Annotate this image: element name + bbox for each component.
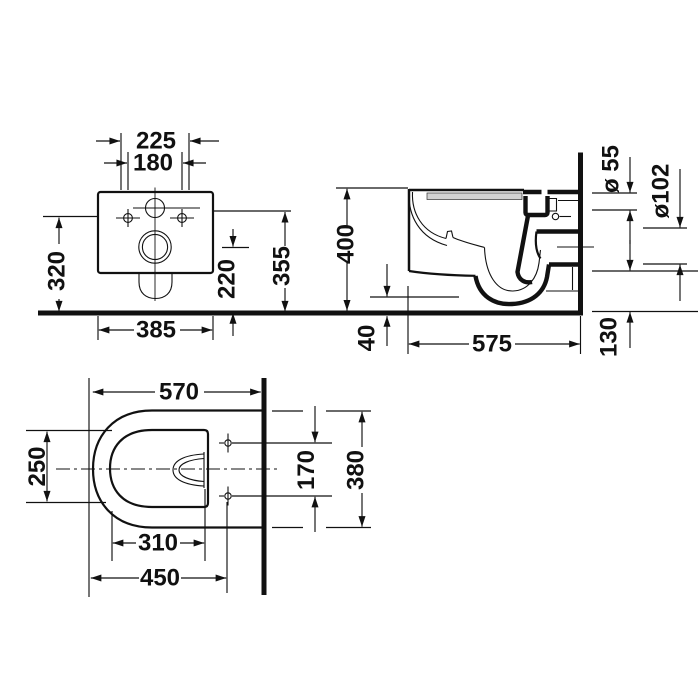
flush-rim-lip [446,231,453,239]
rear-body-outline [98,192,213,273]
dim-side-height: 400 [333,224,360,264]
dim-side-floor-gap: 40 [354,325,381,352]
dim-rear-width: 385 [136,317,176,344]
dim-side-depth: 575 [472,331,512,358]
top-mounting-hole-upper [219,434,231,453]
side-view-dimensions: 400 40 575 ø 55 ø102 130 [333,145,699,358]
dim-top-bowl-width: 250 [24,446,51,486]
side-bottom-edge [409,271,476,276]
dim-side-inlet-diameter: ø 55 [598,145,625,193]
dim-top-hole-spread: 170 [293,450,320,490]
rear-bowl-bottom-outline [139,273,172,299]
mounting-hole-right [170,209,194,227]
water-line [453,238,485,248]
mounting-hole-left [116,209,140,227]
toilet-spec-drawing: 225 180 320 355 220 385 400 40 [0,0,700,700]
dim-rear-hole-span: 180 [133,150,173,177]
dim-rear-height-right: 355 [269,246,296,286]
dim-side-outlet-diameter: ø102 [648,164,675,219]
dim-rear-height-left: 320 [44,251,71,291]
trap-inner-channel [485,248,541,292]
floor-and-wall-lines [38,153,583,596]
sump-inner-arc [179,459,204,482]
flush-valve-box [526,196,548,215]
dim-top-depth: 570 [159,379,199,406]
side-section-view [409,189,594,304]
rear-view [98,188,213,302]
trap-outer-wall [476,265,550,305]
dim-top-width: 380 [343,450,370,490]
dim-top-hole-depth: 450 [140,565,180,592]
seat-band [427,193,522,200]
technical-drawing-sheet: 225 180 320 355 220 385 400 40 [0,0,700,700]
valve-pivot-circle [552,213,558,219]
dim-rear-outlet-height: 220 [214,259,241,299]
top-mounting-hole-lower [219,487,231,506]
dim-side-outlet-drop: 130 [596,317,623,357]
dim-top-inner-depth: 310 [138,530,178,557]
bowl-back-wall [518,213,533,282]
